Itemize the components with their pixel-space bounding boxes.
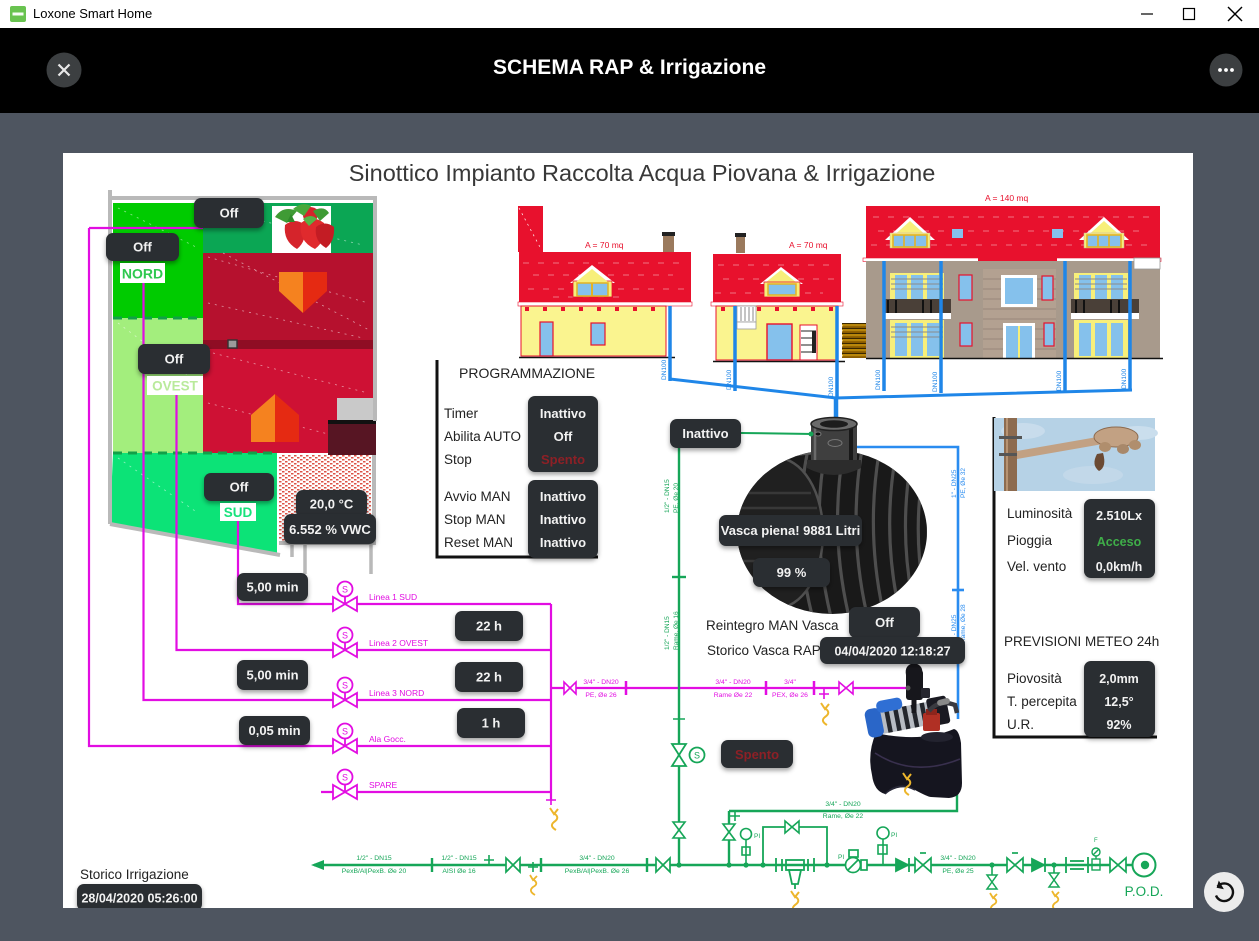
svg-text:Off: Off — [220, 206, 239, 221]
svg-text:Inattivo: Inattivo — [682, 426, 728, 441]
svg-text:1/2" - DN15: 1/2" - DN15 — [356, 855, 391, 862]
svg-text:U.R.: U.R. — [1007, 717, 1034, 732]
svg-text:OVEST: OVEST — [152, 379, 199, 394]
svg-text:DN100: DN100 — [875, 369, 882, 390]
svg-text:Off: Off — [133, 240, 152, 255]
svg-text:PI: PI — [891, 832, 897, 839]
svg-text:5,00 min: 5,00 min — [246, 580, 298, 595]
svg-text:Linea 2 OVEST: Linea 2 OVEST — [369, 638, 428, 648]
svg-text:Off: Off — [554, 429, 573, 444]
svg-text:Ala Gocc.: Ala Gocc. — [369, 734, 406, 744]
svg-text:PE, Øe 32: PE, Øe 32 — [960, 468, 967, 498]
svg-text:A = 70 mq: A = 70 mq — [585, 240, 624, 250]
svg-text:S: S — [342, 773, 348, 783]
svg-text:Stop MAN: Stop MAN — [444, 512, 506, 527]
svg-text:DN100: DN100 — [726, 369, 733, 390]
svg-text:Storico Vasca RAP: Storico Vasca RAP — [707, 643, 821, 658]
svg-text:1/2" - DN15: 1/2" - DN15 — [441, 855, 476, 862]
svg-text:T. percepita: T. percepita — [1007, 694, 1077, 709]
svg-text:PREVISIONI METEO 24h: PREVISIONI METEO 24h — [1004, 634, 1159, 649]
svg-text:Inattivo: Inattivo — [540, 406, 586, 421]
svg-text:92%: 92% — [1106, 718, 1131, 732]
svg-text:Sinottico Impianto Raccolta Ac: Sinottico Impianto Raccolta Acqua Piovan… — [349, 160, 936, 186]
svg-text:Linea 3 NORD: Linea 3 NORD — [369, 688, 424, 698]
svg-text:Inattivo: Inattivo — [540, 489, 586, 504]
svg-text:PI: PI — [838, 854, 844, 861]
svg-text:Vasca piena! 9881 Litri: Vasca piena! 9881 Litri — [721, 523, 860, 538]
svg-text:Off: Off — [230, 480, 249, 495]
svg-text:0,0km/h: 0,0km/h — [1096, 560, 1143, 574]
svg-text:3/4": 3/4" — [784, 679, 796, 686]
svg-text:3/4" - DN20: 3/4" - DN20 — [583, 679, 618, 686]
svg-text:20,0 °C: 20,0 °C — [310, 497, 354, 512]
svg-text:Rame, Øe 22: Rame, Øe 22 — [823, 813, 864, 820]
svg-text:S: S — [342, 727, 348, 737]
svg-text:PROGRAMMAZIONE: PROGRAMMAZIONE — [459, 365, 595, 381]
svg-text:P.O.D.: P.O.D. — [1125, 884, 1164, 899]
svg-text:Avvio MAN: Avvio MAN — [444, 489, 511, 504]
svg-text:3/4" - DN20: 3/4" - DN20 — [579, 855, 614, 862]
svg-text:Abilita AUTO: Abilita AUTO — [444, 429, 521, 444]
svg-text:Spento: Spento — [541, 452, 585, 467]
svg-text:PE, Øe 20: PE, Øe 20 — [673, 483, 680, 513]
svg-text:Rame, Øe 28: Rame, Øe 28 — [960, 604, 967, 643]
svg-text:Rame, Øe 16: Rame, Øe 16 — [673, 611, 680, 650]
svg-text:Linea 1 SUD: Linea 1 SUD — [369, 592, 417, 602]
svg-text:Pioggia: Pioggia — [1007, 533, 1053, 548]
svg-text:1" - DN25: 1" - DN25 — [951, 469, 958, 498]
svg-text:5,00 min: 5,00 min — [246, 668, 298, 683]
svg-text:Off: Off — [875, 615, 894, 630]
svg-text:0,05 min: 0,05 min — [248, 723, 300, 738]
svg-text:DN100: DN100 — [1056, 370, 1063, 391]
svg-text:Rame Øe 22: Rame Øe 22 — [714, 692, 753, 699]
svg-text:DN100: DN100 — [661, 359, 668, 380]
svg-text:SPARE: SPARE — [369, 780, 398, 790]
svg-text:F: F — [1094, 838, 1098, 844]
svg-text:Spento: Spento — [735, 747, 779, 762]
svg-text:PEX, Øe 26: PEX, Øe 26 — [772, 692, 808, 699]
svg-text:3/4" - DN20: 3/4" - DN20 — [825, 801, 860, 808]
svg-text:Timer: Timer — [444, 406, 478, 421]
svg-text:Reset MAN: Reset MAN — [444, 535, 513, 550]
svg-text:2,0mm: 2,0mm — [1099, 672, 1139, 686]
svg-text:Reintegro MAN Vasca: Reintegro MAN Vasca — [706, 618, 839, 633]
svg-text:Luminosità: Luminosità — [1007, 506, 1073, 521]
svg-text:A = 140 mq: A = 140 mq — [985, 193, 1029, 203]
svg-text:S: S — [342, 585, 348, 595]
svg-text:6.552 % VWC: 6.552 % VWC — [289, 522, 371, 537]
svg-text:AISI Øe 16: AISI Øe 16 — [442, 868, 475, 875]
svg-text:Inattivo: Inattivo — [540, 535, 586, 550]
svg-text:1 h: 1 h — [482, 716, 501, 731]
svg-text:Vel. vento: Vel. vento — [1007, 559, 1066, 574]
svg-text:Stop: Stop — [444, 452, 472, 467]
svg-text:2.510Lx: 2.510Lx — [1096, 509, 1142, 523]
svg-text:Acceso: Acceso — [1097, 535, 1142, 549]
svg-text:PexB/Al|PexB. Øe 20: PexB/Al|PexB. Øe 20 — [342, 868, 407, 875]
svg-text:DN100: DN100 — [1121, 368, 1128, 389]
svg-text:3/4" - DN20: 3/4" - DN20 — [940, 855, 975, 862]
svg-text:PI: PI — [754, 833, 760, 840]
svg-text:Storico Irrigazione: Storico Irrigazione — [80, 867, 189, 882]
svg-text:PE, Øe 25: PE, Øe 25 — [942, 868, 974, 875]
svg-text:99 %: 99 % — [777, 565, 807, 580]
svg-text:SUD: SUD — [224, 505, 253, 520]
svg-text:Off: Off — [165, 352, 184, 367]
svg-text:22 h: 22 h — [476, 619, 502, 634]
svg-text:12,5°: 12,5° — [1104, 695, 1133, 709]
svg-text:DN100: DN100 — [932, 371, 939, 392]
svg-text:1/2" - DN15: 1/2" - DN15 — [664, 616, 671, 650]
svg-text:A = 70 mq: A = 70 mq — [789, 240, 828, 250]
svg-text:S: S — [342, 681, 348, 691]
svg-text:S: S — [694, 751, 700, 761]
svg-text:Piovosità: Piovosità — [1007, 671, 1062, 686]
svg-text:28/04/2020 05:26:00: 28/04/2020 05:26:00 — [81, 892, 197, 906]
svg-text:1/2" - DN15: 1/2" - DN15 — [664, 479, 671, 513]
svg-text:04/04/2020 12:18:27: 04/04/2020 12:18:27 — [834, 645, 950, 659]
svg-text:NORD: NORD — [122, 266, 163, 282]
svg-text:3/4" - DN20: 3/4" - DN20 — [715, 679, 750, 686]
svg-text:PexB/Al|PexB. Øe 26: PexB/Al|PexB. Øe 26 — [565, 868, 630, 875]
svg-text:S: S — [342, 631, 348, 641]
svg-text:PE, Øe 26: PE, Øe 26 — [585, 692, 617, 699]
svg-text:Inattivo: Inattivo — [540, 512, 586, 527]
svg-text:DN100: DN100 — [828, 376, 835, 397]
svg-text:22 h: 22 h — [476, 670, 502, 685]
